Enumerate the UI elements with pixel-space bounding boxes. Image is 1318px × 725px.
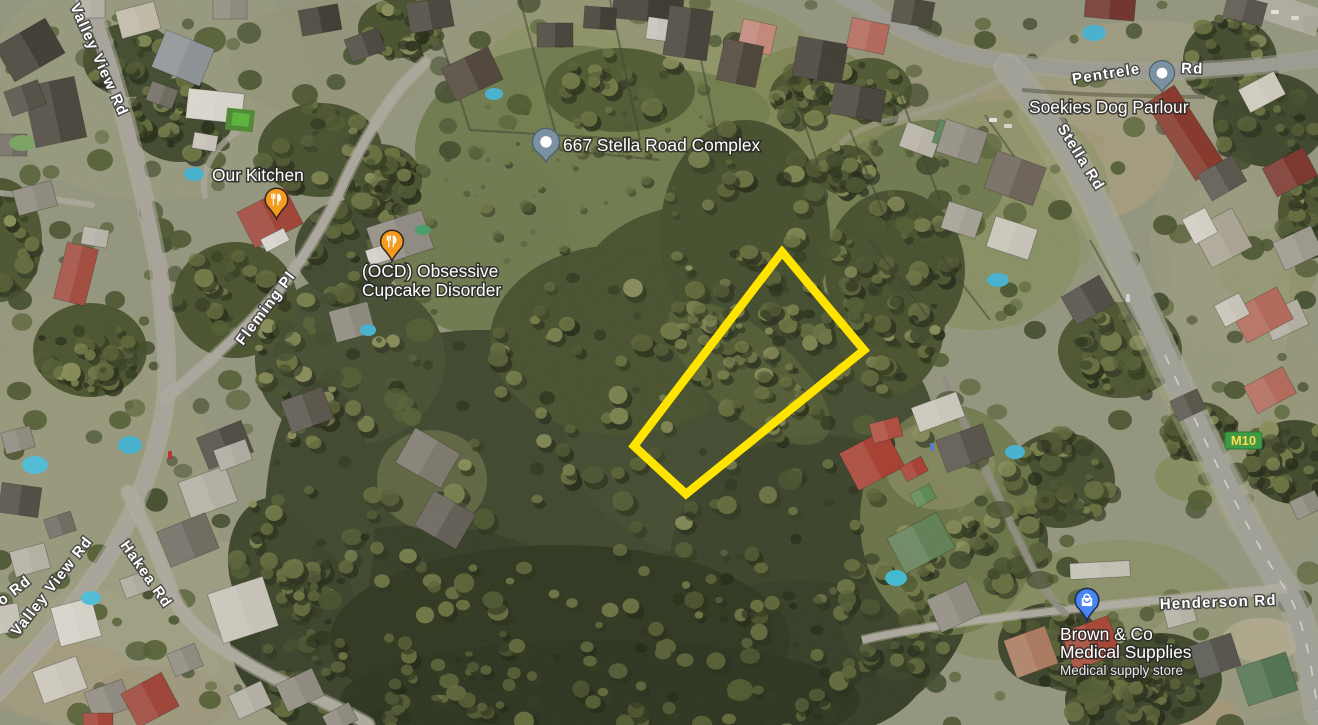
svg-text:Brown & Co: Brown & Co [1060,624,1153,644]
svg-text:667 Stella Road Complex: 667 Stella Road Complex [563,135,761,155]
svg-text:(OCD) Obsessive: (OCD) Obsessive [362,261,498,281]
svg-text:Cupcake Disorder: Cupcake Disorder [362,280,501,300]
svg-text:M10: M10 [1231,433,1256,448]
svg-text:Medical Supplies: Medical Supplies [1060,642,1192,662]
svg-text:Rd: Rd [1181,60,1204,78]
svg-text:Soekies Dog Parlour: Soekies Dog Parlour [1029,97,1189,117]
svg-text:Medical supply store: Medical supply store [1060,663,1183,678]
svg-text:Our Kitchen: Our Kitchen [212,165,304,185]
